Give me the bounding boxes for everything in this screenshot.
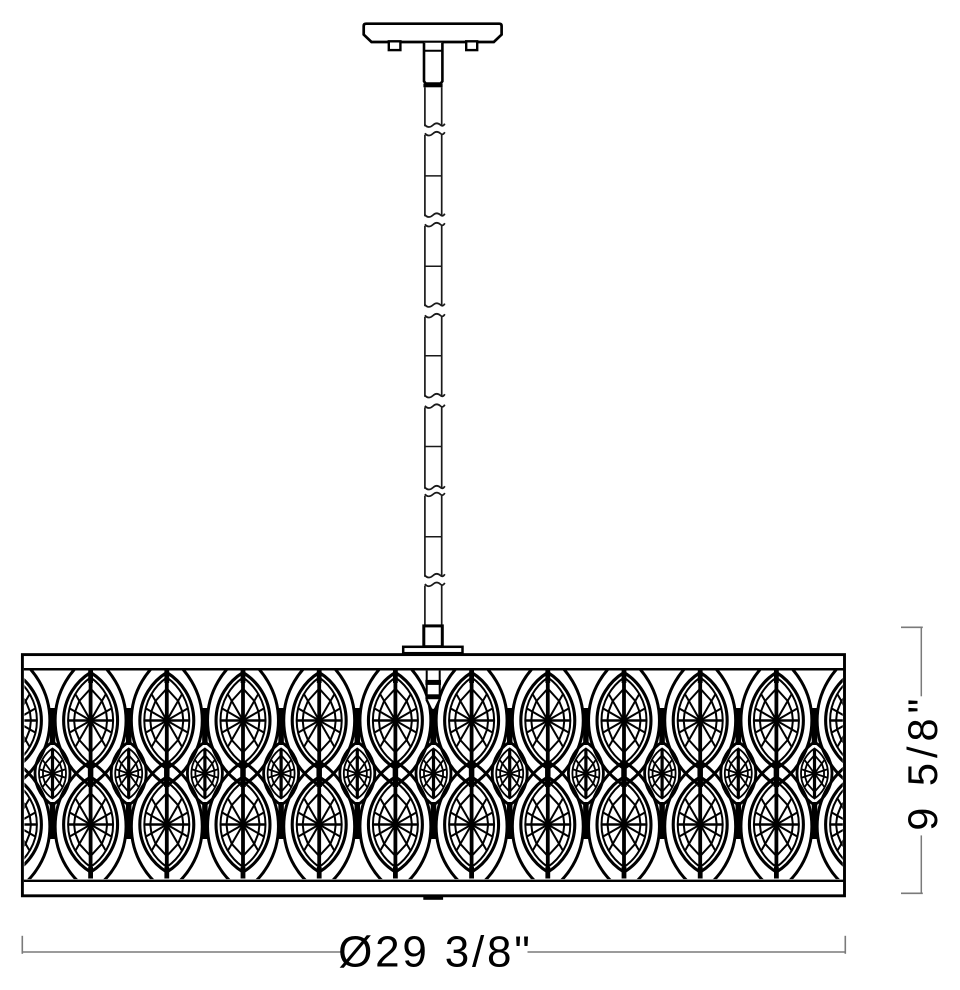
svg-text:9 5/8": 9 5/8" (899, 694, 946, 831)
svg-text:Ø29 3/8": Ø29 3/8" (338, 928, 533, 977)
